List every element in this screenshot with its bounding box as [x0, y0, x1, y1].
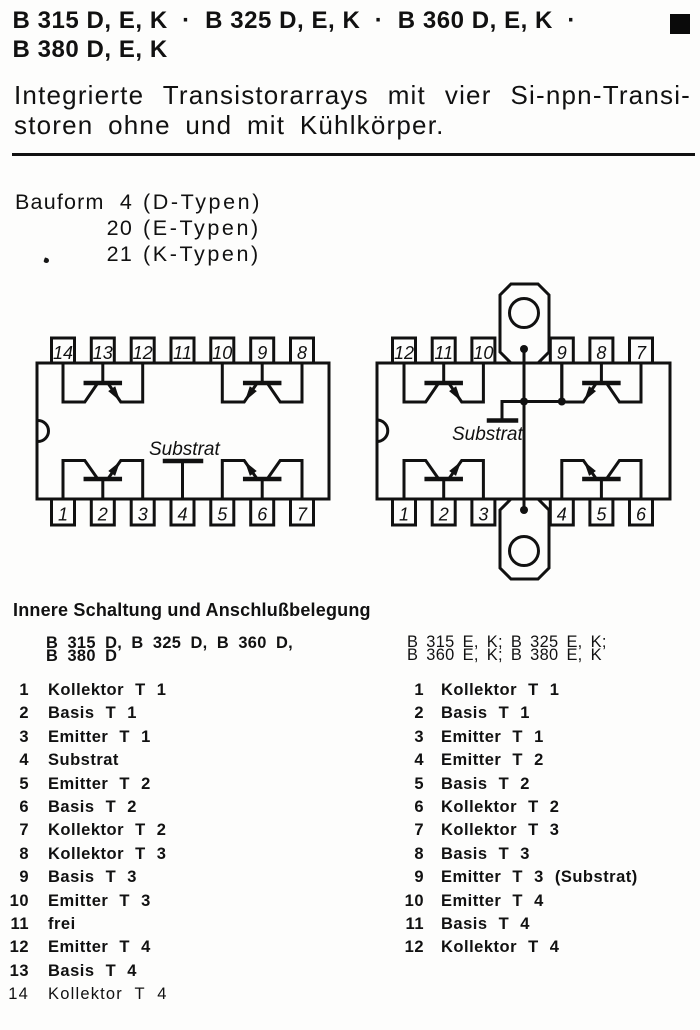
- svg-text:2: 2: [438, 505, 449, 525]
- svg-text:Substrat: Substrat: [452, 424, 523, 445]
- svg-text:8: 8: [596, 343, 606, 363]
- svg-text:3: 3: [478, 505, 488, 525]
- svg-text:6: 6: [257, 505, 268, 525]
- svg-text:1: 1: [399, 505, 409, 525]
- svg-text:4: 4: [557, 505, 567, 525]
- svg-text:5: 5: [217, 505, 228, 525]
- svg-text:12: 12: [133, 343, 153, 363]
- svg-text:5: 5: [596, 505, 607, 525]
- svg-text:4: 4: [177, 505, 187, 525]
- svg-text:Substrat: Substrat: [149, 439, 220, 460]
- svg-text:2: 2: [97, 505, 108, 525]
- svg-text:6: 6: [636, 505, 647, 525]
- svg-text:3: 3: [138, 505, 148, 525]
- svg-text:13: 13: [93, 343, 113, 363]
- svg-text:11: 11: [434, 343, 453, 363]
- svg-text:9: 9: [257, 343, 267, 363]
- svg-text:1: 1: [58, 505, 68, 525]
- svg-text:9: 9: [557, 343, 567, 363]
- svg-text:7: 7: [297, 505, 308, 525]
- svg-text:8: 8: [297, 343, 307, 363]
- svg-text:11: 11: [173, 343, 192, 363]
- svg-text:7: 7: [636, 343, 647, 363]
- svg-text:12: 12: [394, 343, 414, 363]
- svg-text:10: 10: [212, 343, 232, 363]
- svg-text:10: 10: [473, 343, 493, 363]
- svg-text:14: 14: [53, 343, 73, 363]
